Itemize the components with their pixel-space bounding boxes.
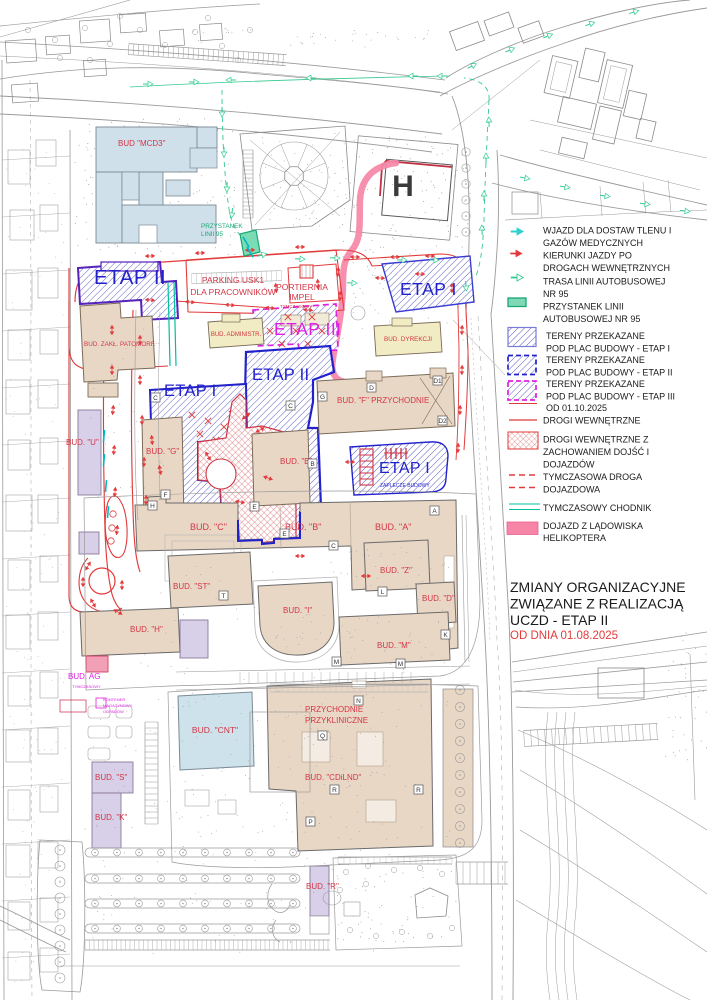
- svg-text:BUD. "D": BUD. "D": [422, 594, 455, 603]
- svg-text:PARKING USK1: PARKING USK1: [202, 275, 264, 285]
- svg-text:A: A: [432, 508, 437, 515]
- svg-text:POD PLAC BUDOWY - ETAP II: POD PLAC BUDOWY - ETAP II: [546, 368, 673, 378]
- svg-text:DOJAZDOWA: DOJAZDOWA: [543, 485, 600, 495]
- svg-text:ZMIANY ORGANIZACYJNE: ZMIANY ORGANIZACYJNE: [510, 579, 686, 595]
- svg-text:GAZÓW MEDYCZNYCH: GAZÓW MEDYCZNYCH: [543, 238, 643, 248]
- svg-text:BUD. "ST": BUD. "ST": [173, 582, 210, 591]
- svg-text:H: H: [392, 170, 414, 203]
- svg-text:D1: D1: [433, 378, 442, 385]
- svg-text:TYMCZASOWY: TYMCZASOWY: [280, 304, 312, 309]
- svg-text:ETAP III: ETAP III: [274, 319, 342, 339]
- svg-text:ZWIĄZANE Z REALIZACJĄ: ZWIĄZANE Z REALIZACJĄ: [510, 596, 684, 612]
- svg-text:OD 01.10.2025: OD 01.10.2025: [546, 403, 607, 413]
- svg-text:BUD. "C": BUD. "C": [190, 522, 227, 532]
- svg-text:L: L: [381, 589, 385, 596]
- svg-text:BUD. "S": BUD. "S": [95, 773, 128, 782]
- svg-text:C: C: [288, 403, 293, 410]
- svg-text:UCZD - ETAP II: UCZD - ETAP II: [510, 612, 608, 628]
- svg-text:ETAP I: ETAP I: [379, 460, 430, 477]
- svg-text:BUD. ADMINISTR.: BUD. ADMINISTR.: [211, 332, 262, 338]
- svg-text:TERENY PRZEKAZANE: TERENY PRZEKAZANE: [546, 355, 645, 365]
- svg-text:D2: D2: [438, 418, 447, 425]
- svg-text:DLA PRACOWNIKÓW: DLA PRACOWNIKÓW: [190, 287, 275, 297]
- svg-text:TYMCZASOWA DROGA: TYMCZASOWA DROGA: [543, 472, 642, 482]
- svg-text:C: C: [331, 543, 336, 550]
- svg-text:BUD. "H": BUD. "H": [130, 625, 163, 634]
- svg-text:PRZYSTANEK: PRZYSTANEK: [201, 223, 243, 230]
- svg-text:BUD. "CDiLND": BUD. "CDiLND": [305, 773, 362, 782]
- svg-text:C: C: [153, 395, 158, 402]
- svg-text:DROGI WEWNĘTRZNE Z: DROGI WEWNĘTRZNE Z: [543, 435, 649, 445]
- svg-text:ZAPLECZE BUDOWY: ZAPLECZE BUDOWY: [380, 483, 430, 489]
- svg-text:BUD. "U": BUD. "U": [66, 438, 99, 447]
- svg-text:F: F: [164, 492, 168, 499]
- svg-text:PRZYCHODNIE: PRZYCHODNIE: [305, 705, 363, 714]
- svg-text:BUD. "G": BUD. "G": [146, 447, 179, 456]
- svg-text:AUTOBUSOWEJ NR 95: AUTOBUSOWEJ NR 95: [543, 314, 640, 324]
- svg-text:BUD. "R": BUD. "R": [306, 882, 339, 891]
- svg-text:BUD. "E": BUD. "E": [280, 457, 313, 466]
- svg-text:P: P: [308, 819, 312, 826]
- svg-text:MAGAZYNOWY: MAGAZYNOWY: [103, 703, 133, 708]
- svg-text:T: T: [222, 593, 226, 600]
- svg-text:BUD. "CNT": BUD. "CNT": [192, 725, 238, 735]
- svg-text:TRASA LINII AUTOBUSOWEJ: TRASA LINII AUTOBUSOWEJ: [543, 277, 665, 287]
- svg-text:DOJAZD Z LĄDOWISKA: DOJAZD Z LĄDOWISKA: [543, 521, 643, 531]
- svg-text:TYMCZASOWY CHODNIK: TYMCZASOWY CHODNIK: [543, 503, 651, 513]
- svg-text:TERENY PRZEKAZANE: TERENY PRZEKAZANE: [546, 331, 645, 341]
- svg-text:ETAP II: ETAP II: [252, 366, 309, 384]
- svg-text:ZACHOWANIEM DOJŚĆ I: ZACHOWANIEM DOJŚĆ I: [543, 446, 649, 457]
- svg-text:K: K: [443, 632, 448, 639]
- svg-text:ETAP I: ETAP I: [400, 279, 457, 299]
- svg-text:BUD. "M": BUD. "M": [377, 641, 411, 650]
- svg-text:BUD. "A": BUD. "A": [375, 522, 411, 532]
- svg-text:B: B: [310, 461, 314, 468]
- svg-text:M: M: [334, 659, 339, 666]
- svg-text:M: M: [398, 661, 403, 668]
- svg-text:NR 95: NR 95: [543, 289, 569, 299]
- svg-text:BUD. "K": BUD. "K": [95, 813, 128, 822]
- svg-text:PRZYKLINICZNE: PRZYKLINICZNE: [305, 716, 368, 725]
- svg-text:E: E: [252, 504, 257, 511]
- svg-text:POD PLAC BUDOWY - ETAP I: POD PLAC BUDOWY - ETAP I: [546, 344, 670, 354]
- svg-text:POD PLAC BUDOWY - ETAP III: POD PLAC BUDOWY - ETAP III: [546, 392, 675, 402]
- svg-text:LINII 95: LINII 95: [201, 231, 224, 238]
- svg-text:R: R: [332, 787, 337, 794]
- svg-text:BUD. DYREKCJI: BUD. DYREKCJI: [384, 336, 432, 343]
- svg-text:BUD. "B": BUD. "B": [285, 522, 321, 532]
- svg-text:BUD. "I": BUD. "I": [283, 606, 312, 615]
- svg-text:BUD. ZAKŁ. PATOMORF.: BUD. ZAKŁ. PATOMORF.: [84, 341, 156, 348]
- svg-text:ODPADÓW: ODPADÓW: [103, 709, 124, 714]
- svg-text:D: D: [369, 385, 374, 392]
- svg-text:R: R: [416, 787, 421, 794]
- svg-text:DROGI WEWNĘTRZNE: DROGI WEWNĘTRZNE: [543, 416, 641, 426]
- svg-text:ETAP I: ETAP I: [164, 382, 217, 400]
- svg-text:PORTIERNIA: PORTIERNIA: [276, 282, 328, 292]
- svg-text:BUD. "F" PRZYCHODNIE: BUD. "F" PRZYCHODNIE: [337, 396, 429, 405]
- svg-text:BUD "MCD3": BUD "MCD3": [118, 139, 166, 148]
- svg-text:H: H: [150, 503, 155, 510]
- svg-text:TYMCZASOWY: TYMCZASOWY: [72, 684, 101, 689]
- svg-text:E: E: [282, 531, 287, 538]
- svg-text:Q: Q: [320, 733, 325, 740]
- svg-text:BUD. AG: BUD. AG: [68, 672, 100, 681]
- svg-text:WJAZD DLA DOSTAW TLENU I: WJAZD DLA DOSTAW TLENU I: [543, 226, 671, 236]
- svg-text:N: N: [356, 698, 361, 705]
- svg-text:IMPEL: IMPEL: [289, 292, 315, 302]
- svg-text:KIERUNKI JAZDY PO: KIERUNKI JAZDY PO: [543, 251, 632, 261]
- svg-text:TERENY PRZEKAZANE: TERENY PRZEKAZANE: [546, 379, 645, 389]
- svg-text:ETAP II: ETAP II: [94, 266, 166, 289]
- svg-text:DROGACH WEWNĘTRZNYCH: DROGACH WEWNĘTRZNYCH: [543, 263, 670, 273]
- svg-text:PRZYSTANEK LINII: PRZYSTANEK LINII: [543, 302, 624, 312]
- svg-text:OD DNIA 01.08.2025: OD DNIA 01.08.2025: [510, 630, 618, 642]
- svg-text:G: G: [320, 394, 325, 401]
- svg-text:DOJAZDÓW: DOJAZDÓW: [543, 460, 595, 470]
- svg-text:HELIKOPTERA: HELIKOPTERA: [543, 533, 606, 543]
- svg-text:BUD. "Z": BUD. "Z": [380, 566, 412, 575]
